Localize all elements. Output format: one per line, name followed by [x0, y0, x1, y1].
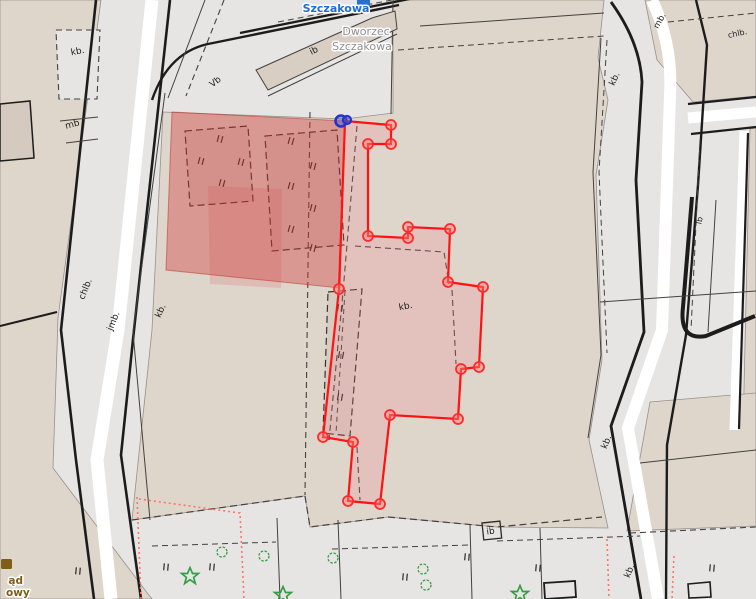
landuse-label-ib-boxed: ib — [486, 526, 496, 537]
vertex-handle[interactable] — [386, 120, 396, 130]
selected-parcel-overlay-dark — [208, 186, 282, 288]
selected-vertex-handle-snap[interactable] — [343, 116, 351, 124]
vertex-handle[interactable] — [385, 410, 395, 420]
poi-label-dworzec-1: Dworzec — [342, 25, 389, 38]
vertex-handle[interactable] — [456, 364, 466, 374]
map-canvas[interactable]: SzczakowaDworzecSzczakowaibVbkb.mbchlb.j… — [0, 0, 756, 599]
parcel-notch-topleft — [56, 30, 100, 99]
vertex-handle[interactable] — [363, 231, 373, 241]
poi-label-dworzec-2: Szczakowa — [332, 40, 392, 53]
vertex-handle[interactable] — [386, 139, 396, 149]
road-stripe-topright — [688, 112, 756, 118]
vertex-handle[interactable] — [403, 222, 413, 232]
vertex-handle[interactable] — [318, 432, 328, 442]
vertex-handle[interactable] — [453, 414, 463, 424]
vertex-handle[interactable] — [478, 282, 488, 292]
poi-label-urzad-1: ąd — [8, 575, 23, 587]
street-label-szczakowa: Szczakowa — [303, 2, 370, 15]
vertex-handle[interactable] — [403, 233, 413, 243]
post-office-icon — [1, 559, 12, 569]
vertex-handle[interactable] — [334, 284, 344, 294]
vertex-handle[interactable] — [343, 496, 353, 506]
poi-label-urzad-2: owy — [6, 587, 30, 599]
vertex-handle[interactable] — [348, 437, 358, 447]
vertex-handle[interactable] — [363, 139, 373, 149]
vertex-handle[interactable] — [474, 362, 484, 372]
vertex-handle[interactable] — [443, 277, 453, 287]
vertex-handle[interactable] — [375, 499, 385, 509]
vertex-handle[interactable] — [445, 224, 455, 234]
map-svg[interactable]: SzczakowaDworzecSzczakowaibVbkb.mbchlb.j… — [0, 0, 756, 599]
left-edge-building — [0, 101, 34, 161]
